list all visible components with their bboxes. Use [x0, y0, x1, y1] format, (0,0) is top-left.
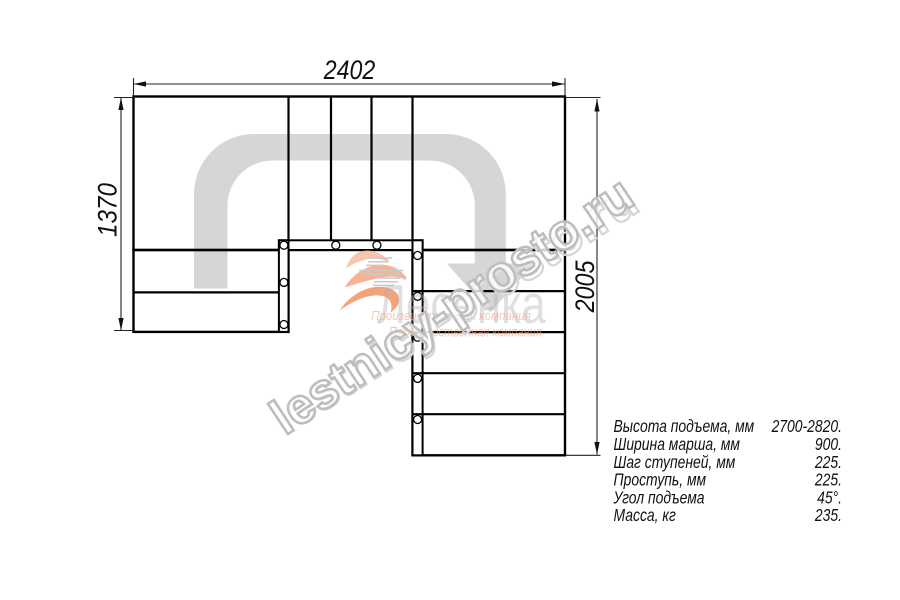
- svg-text:2005: 2005: [571, 260, 601, 313]
- svg-text:45°.: 45°.: [817, 489, 842, 508]
- svg-text:2402: 2402: [323, 55, 376, 85]
- svg-text:Масса, кг: Масса, кг: [614, 507, 677, 526]
- svg-text:2700-2820.: 2700-2820.: [771, 418, 842, 437]
- svg-text:1370: 1370: [94, 183, 123, 237]
- svg-text:Проступь, мм: Проступь, мм: [614, 471, 707, 490]
- svg-text:Ширина марша, мм: Ширина марша, мм: [614, 436, 741, 455]
- svg-text:225.: 225.: [814, 454, 842, 473]
- svg-text:Угол подъема: Угол подъема: [613, 489, 705, 508]
- svg-text:900.: 900.: [815, 436, 842, 455]
- svg-text:Шаг ступеней, мм: Шаг ступеней, мм: [614, 454, 736, 473]
- svg-text:Высота подъема, мм: Высота подъема, мм: [614, 418, 755, 437]
- svg-text:235.: 235.: [814, 507, 842, 526]
- svg-text:225.: 225.: [814, 471, 842, 490]
